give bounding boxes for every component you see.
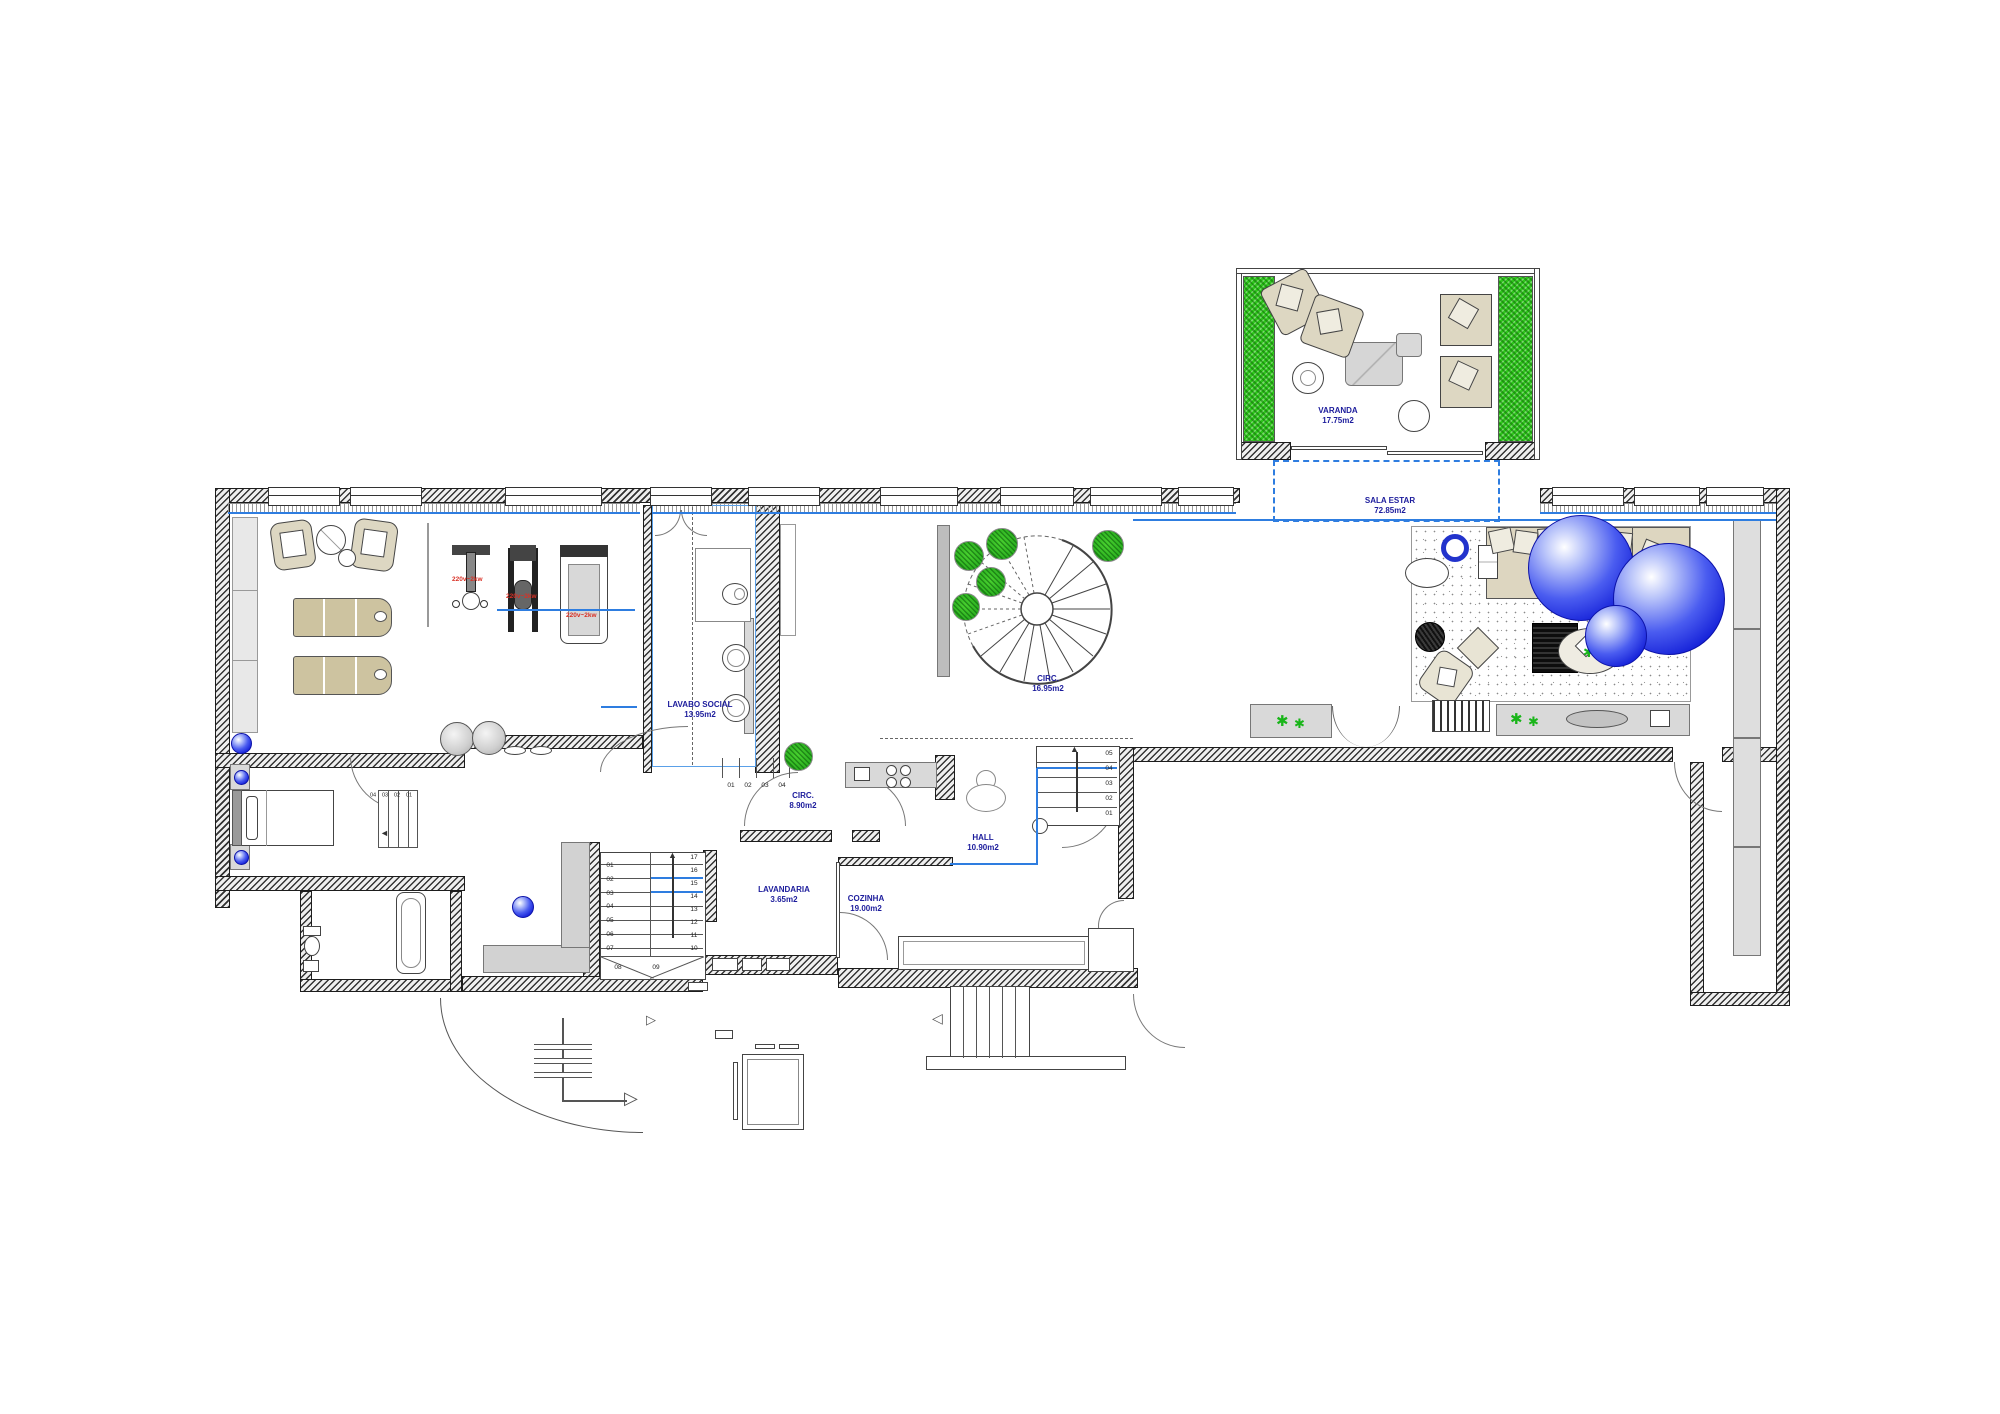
armchair-cushion: [360, 528, 387, 557]
stair-step-number: 04: [606, 904, 613, 911]
appliance-box: [742, 958, 762, 971]
window: [505, 487, 602, 506]
bathtub-basin: [401, 898, 421, 968]
potted-plant: [952, 593, 980, 621]
wall: [215, 488, 230, 908]
door-track: [755, 1044, 775, 1049]
headrest: [374, 611, 387, 622]
stair-step-number: 02: [606, 877, 613, 884]
potted-plant: [986, 528, 1018, 560]
gym-machine-base: [452, 600, 460, 608]
datum-line: [228, 512, 640, 514]
wicker-chair: [1398, 400, 1430, 432]
stair-step-number: 03: [382, 793, 388, 799]
window: [880, 487, 958, 506]
stair-step-number: 03: [1105, 781, 1112, 788]
stair-arrow-line: [1076, 752, 1078, 812]
room-name: LAVANDARIA: [758, 885, 810, 894]
landing-platform: [483, 945, 590, 973]
armchair-cushion: [279, 529, 306, 558]
window: [350, 487, 422, 506]
datum-line: [601, 706, 637, 708]
stair-step-number: 10: [690, 946, 697, 953]
sliding-door: [1291, 446, 1387, 450]
room-area: 19.00m2: [850, 904, 882, 913]
pillar: [937, 525, 950, 677]
stair-tread-line: [601, 956, 703, 957]
room-divider-line: [427, 523, 429, 627]
room-area: 17.75m2: [1322, 416, 1354, 425]
stair-tread-line: [963, 986, 964, 1058]
exterior-stair: [950, 986, 1030, 1058]
wall: [450, 891, 462, 992]
room-name: LAVABO SOCIAL: [667, 700, 732, 709]
stair-tread-line: [601, 934, 703, 935]
room-name: HALL: [972, 833, 993, 842]
wall: [740, 830, 832, 842]
sink-bowl: [727, 649, 745, 667]
exercise-ball: [472, 721, 506, 755]
potted-plant: [1092, 530, 1124, 562]
stair-step-number: 04: [1105, 766, 1112, 773]
toilet-seat: [734, 588, 745, 600]
entry-bar: [534, 1058, 592, 1064]
wall: [1485, 442, 1540, 460]
power-label: 220v~2kw: [566, 613, 597, 620]
headrest: [374, 669, 387, 680]
closet-strip: [232, 517, 258, 733]
potted-plant: [784, 742, 813, 771]
stair-step-number: 05: [606, 918, 613, 925]
stair-step-number: 05: [1105, 751, 1112, 758]
up-arrow-icon: ▲: [668, 850, 677, 860]
hedge-plants: [1498, 276, 1533, 442]
toilet: [304, 936, 320, 956]
cooktop-burner: [886, 765, 897, 776]
stair-tread-line: [1002, 986, 1003, 1058]
wall: [215, 753, 465, 768]
stair-tread-line: [976, 986, 977, 1058]
sofa-pillow: [1488, 527, 1515, 554]
decor-sphere-medium: [1585, 605, 1647, 667]
stair-tread-blue: [651, 877, 703, 879]
window: [1178, 487, 1234, 506]
wall: [1690, 992, 1790, 1006]
datum-line: [1540, 512, 1776, 514]
stair-step-number: 02: [744, 783, 751, 790]
decor-orb: [234, 850, 249, 865]
stair-step-number: 02: [394, 793, 400, 799]
left-arrow-icon: ◄: [380, 828, 389, 838]
stair-step-number: 09: [652, 965, 659, 972]
stair-step-number: 11: [691, 933, 698, 940]
room-label-lavandaria: LAVANDARIA 3.65m2: [758, 885, 810, 905]
room-label-varanda: VARANDA 17.75m2: [1318, 406, 1357, 426]
room-name: VARANDA: [1318, 406, 1357, 415]
wall-niche: [780, 524, 796, 636]
stair-tread-line: [1015, 986, 1016, 1058]
balcony-side-table: [1396, 333, 1422, 357]
window: [748, 487, 820, 506]
stair-step-number: 02: [1105, 796, 1112, 803]
stair-step-number: 17: [690, 855, 697, 862]
stair-step-number: 01: [406, 793, 412, 799]
floor-line: [950, 863, 1038, 865]
sliding-door: [1387, 451, 1483, 455]
massage-table: [293, 598, 392, 637]
window: [1000, 487, 1074, 506]
centerline: [692, 507, 693, 765]
floor-line: [1036, 768, 1038, 865]
treadmill-console: [560, 545, 608, 557]
kitchen-sink: [854, 767, 870, 781]
kitchen-bar: [1088, 928, 1134, 972]
entry-bar: [534, 1072, 592, 1078]
room-label-hall: HALL 10.90m2: [967, 833, 999, 853]
potted-plant: [976, 567, 1006, 597]
cooktop-burner: [900, 777, 911, 788]
room-name: CIRC.: [1037, 674, 1059, 683]
left-arrow-icon: ◁: [932, 1010, 943, 1027]
doormat-inner: [747, 1059, 799, 1125]
oval-table: [1405, 558, 1449, 588]
stair-tread-line: [601, 864, 703, 865]
stair-step-number: 08: [614, 965, 621, 972]
threshold-box: [688, 982, 708, 991]
stair-step-number: 14: [690, 894, 697, 901]
stair-step-number: 12: [690, 920, 697, 927]
up-arrow-icon: ▷: [646, 1012, 656, 1028]
entry-bar: [534, 1044, 592, 1050]
stair-step-number: 03: [606, 890, 613, 897]
wall: [215, 876, 465, 891]
closet-divider: [232, 660, 258, 661]
wardrobe: [1733, 520, 1761, 956]
balcony-wall: [1534, 268, 1540, 460]
window: [1090, 487, 1162, 506]
decor-orb: [512, 896, 534, 918]
potted-plant: [954, 541, 984, 571]
person-figure: [966, 784, 1006, 812]
entry-path-line: [563, 1100, 627, 1102]
double-door-arc: [1366, 706, 1400, 747]
room-label-circ-small: CIRC. 8.90m2: [789, 791, 816, 811]
datum-line: [497, 609, 635, 611]
kitchen-island-top: [903, 941, 1085, 965]
bowl: [530, 746, 552, 755]
bed-pillow: [246, 796, 258, 840]
wicker-chair-cushion: [1300, 370, 1316, 386]
window: [1634, 487, 1700, 506]
double-door-leaf: [1098, 900, 1124, 926]
wall: [300, 979, 462, 992]
door-arc: [1674, 762, 1722, 812]
wall: [755, 505, 780, 773]
room-area: 13.95m2: [684, 710, 716, 719]
wall: [1133, 747, 1673, 762]
bench: [715, 1030, 733, 1039]
room-area: 3.65m2: [770, 895, 797, 904]
wall: [1118, 747, 1134, 899]
gym-machine-base: [480, 600, 488, 608]
room-label-sala-estar: SALA ESTAR 72.85m2: [1365, 496, 1415, 516]
exterior-curb: [926, 1056, 1126, 1070]
balcony-wall: [1236, 268, 1242, 460]
stair-step-number: 04: [370, 793, 376, 799]
stair-step-number: 03: [761, 783, 768, 790]
room-name: CIRC.: [792, 791, 814, 800]
right-arrow-icon: ▷: [624, 1088, 638, 1109]
cooktop-burner: [900, 765, 911, 776]
up-arrow-icon: ▲: [1070, 744, 1079, 754]
decor-orb: [231, 733, 252, 754]
gym-machine-seat: [462, 592, 480, 610]
massage-table: [293, 656, 392, 695]
stair-tread-line: [601, 920, 703, 921]
room-name: SALA ESTAR: [1365, 496, 1415, 505]
stair-step-number: 04: [778, 783, 785, 790]
armchair-pillow: [1437, 667, 1458, 688]
entry-arc: [440, 998, 643, 1133]
plant-icon: ✱: [1528, 716, 1539, 729]
room-area: 8.90m2: [789, 801, 816, 810]
wall: [1776, 488, 1790, 1006]
datum-line: [652, 512, 1236, 514]
appliance-box: [766, 958, 790, 971]
wall: [852, 830, 880, 842]
console-box: [1650, 710, 1670, 727]
soundbar: [1566, 710, 1628, 728]
round-side-table: [338, 549, 356, 567]
toilet-tank: [303, 926, 321, 936]
doormat-side: [733, 1062, 738, 1120]
room-name: COZINHA: [848, 894, 884, 903]
stair-step-number: 15: [690, 881, 697, 888]
door-arc: [1133, 994, 1185, 1048]
closet-divider: [232, 590, 258, 591]
stair-tread-line: [989, 986, 990, 1058]
stair-step-number: 01: [606, 863, 613, 870]
plant-icon: ✱: [1276, 714, 1289, 729]
stair-step-number: 01: [1105, 811, 1112, 818]
wall: [838, 857, 953, 866]
stair-step-number: 06: [606, 932, 613, 939]
stair-divider: [650, 852, 651, 956]
stair-tread-line: [388, 790, 389, 848]
round-pouf-dark: [1415, 622, 1445, 652]
stair-tread-line: [756, 758, 757, 778]
gym-machine-console: [510, 545, 536, 561]
door-arc: [840, 912, 888, 960]
exercise-ball: [440, 722, 474, 756]
cooktop-burner: [886, 777, 897, 788]
balcony-table: [1345, 342, 1403, 386]
stair-tread-line: [739, 758, 740, 778]
chair-pillow: [1316, 308, 1343, 335]
room-area: 72.85m2: [1374, 506, 1406, 515]
stair-tread-line: [601, 948, 703, 949]
window: [268, 487, 340, 506]
stair-tread-line: [773, 758, 774, 778]
door-track: [779, 1044, 799, 1049]
window: [1706, 487, 1764, 506]
stair-arrow-line: [672, 858, 674, 938]
bowl: [504, 746, 526, 755]
datum-line: [1133, 519, 1776, 521]
room-label-cozinha: COZINHA 19.00m2: [848, 894, 884, 914]
bed-headboard: [232, 790, 242, 846]
decor-orb: [234, 770, 249, 785]
wall-clock: [1441, 534, 1469, 562]
window: [1552, 487, 1624, 506]
room-area: 10.90m2: [967, 843, 999, 852]
stair-step-number: 07: [606, 946, 613, 953]
plant-icon: ✱: [1294, 718, 1305, 731]
sideboard: [1250, 704, 1332, 738]
room-label-lavabo: LAVABO SOCIAL 13.95m2: [667, 700, 732, 720]
stair-step-number: 01: [727, 783, 734, 790]
power-label: 220v~2kw: [506, 594, 537, 601]
floor-plan-canvas: VARANDA 17.75m2 SALA ESTAR 72.85m2 ✱ ✱ ✱…: [0, 0, 2000, 1414]
stair-tread-line: [601, 906, 703, 907]
room-label-circ-main: CIRC. 16.95m2: [1032, 674, 1064, 694]
gym-machine-cable: [466, 552, 476, 592]
stair-step-number: 16: [690, 868, 697, 875]
wall: [935, 755, 955, 800]
door-arc: [600, 726, 688, 772]
bed-fold-line: [266, 790, 267, 846]
bookshelf: [1432, 700, 1490, 732]
treadmill-belt: [568, 564, 600, 636]
room-area: 16.95m2: [1032, 684, 1064, 693]
landing-platform: [561, 842, 590, 948]
double-door-arc: [1332, 706, 1366, 747]
window: [650, 487, 712, 506]
floor-lamp: [1032, 818, 1048, 834]
plant-icon: ✱: [1510, 712, 1523, 727]
appliance-box: [712, 958, 738, 971]
balcony-wall: [1236, 268, 1540, 274]
wall: [1236, 442, 1291, 460]
open-boundary: [880, 738, 1133, 739]
stair-step-number: 13: [690, 907, 697, 914]
wall-partition: [836, 862, 840, 958]
washbasin: [303, 960, 319, 972]
power-label: 220v~2kw: [452, 577, 483, 584]
